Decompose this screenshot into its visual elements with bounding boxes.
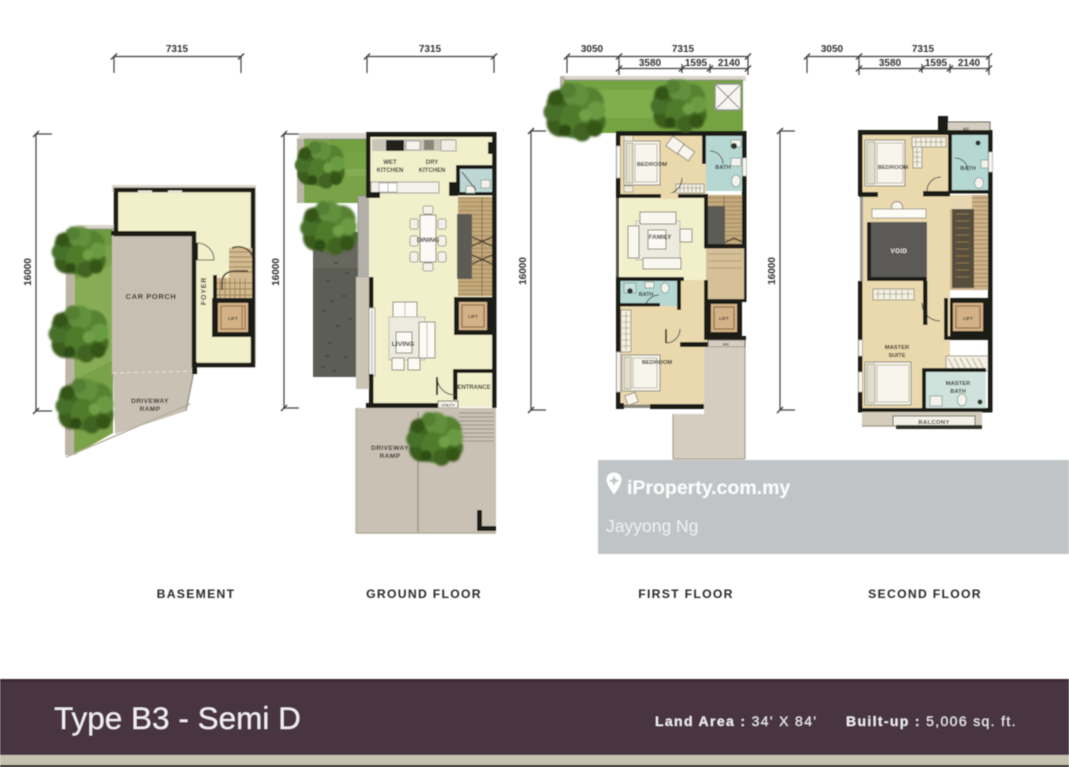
svg-text:KITCHEN: KITCHEN — [419, 168, 446, 174]
svg-text:BATH: BATH — [715, 165, 731, 171]
svg-text:KITCHEN: KITCHEN — [377, 168, 404, 174]
svg-text:DRIVEWAY: DRIVEWAY — [371, 445, 409, 452]
svg-text:DRIVEWAY: DRIVEWAY — [131, 398, 169, 405]
svg-text:7315: 7315 — [419, 44, 442, 55]
svg-text:LIFT: LIFT — [468, 314, 478, 319]
svg-text:SECOND FLOOR: SECOND FLOOR — [868, 587, 982, 601]
svg-text:BEDROOM: BEDROOM — [637, 162, 667, 168]
svg-text:CAR PORCH: CAR PORCH — [126, 292, 177, 301]
svg-text:LIFT: LIFT — [963, 316, 973, 321]
svg-text:16000: 16000 — [518, 257, 529, 285]
svg-text:BATH: BATH — [960, 166, 976, 172]
svg-text:Land Area : 34' X 84': Land Area : 34' X 84' — [655, 713, 817, 729]
svg-text:BATH: BATH — [950, 389, 966, 395]
svg-text:FAMILY: FAMILY — [649, 234, 673, 241]
svg-text:1595: 1595 — [685, 58, 708, 69]
svg-text:DRY: DRY — [426, 160, 438, 166]
svg-text:3580: 3580 — [879, 58, 902, 69]
svg-text:MASTER: MASTER — [946, 381, 971, 387]
svg-text:16000: 16000 — [23, 258, 34, 286]
svg-text:ENTRANCE: ENTRANCE — [457, 385, 490, 391]
svg-text:BEDROOM: BEDROOM — [642, 360, 672, 366]
svg-text:7315: 7315 — [672, 44, 695, 55]
svg-text:iProperty.com.my: iProperty.com.my — [627, 477, 790, 499]
svg-text:Built-up : 5,006 sq. ft.: Built-up : 5,006 sq. ft. — [846, 713, 1017, 729]
svg-text:LIFT: LIFT — [228, 316, 238, 321]
svg-text:VOID: VOID — [891, 249, 908, 255]
svg-text:BASEMENT: BASEMENT — [157, 587, 236, 601]
svg-text:16000: 16000 — [271, 258, 282, 286]
svg-text:Type B3 - Semi D: Type B3 - Semi D — [54, 700, 301, 736]
svg-text:RAMP: RAMP — [379, 453, 400, 460]
svg-text:7315: 7315 — [912, 44, 935, 55]
svg-text:BEDROOM: BEDROOM — [878, 165, 908, 171]
svg-text:7315: 7315 — [166, 44, 189, 55]
svg-text:A/C: A/C — [723, 343, 730, 347]
svg-text:UTILITY: UTILITY — [441, 404, 455, 408]
svg-text:DINING: DINING — [417, 237, 439, 244]
svg-text:GROUND FLOOR: GROUND FLOOR — [366, 587, 482, 601]
svg-text:3050: 3050 — [581, 44, 604, 55]
svg-text:FOYER: FOYER — [201, 277, 208, 305]
svg-text:3580: 3580 — [639, 58, 662, 69]
svg-text:FIRST FLOOR: FIRST FLOOR — [638, 587, 734, 601]
svg-text:SUITE: SUITE — [888, 353, 905, 359]
svg-text:2140: 2140 — [958, 58, 981, 69]
svg-text:LIVING: LIVING — [392, 341, 415, 348]
svg-text:3050: 3050 — [821, 44, 844, 55]
svg-text:MASTER: MASTER — [885, 345, 910, 351]
svg-text:LIFT: LIFT — [719, 316, 729, 321]
svg-text:RAMP: RAMP — [139, 406, 160, 413]
svg-text:16000: 16000 — [767, 257, 778, 285]
svg-text:1595: 1595 — [925, 58, 948, 69]
svg-text:WET: WET — [383, 160, 397, 166]
svg-text:BATH: BATH — [639, 292, 654, 298]
svg-text:Jayyong Ng: Jayyong Ng — [606, 516, 698, 536]
svg-text:2140: 2140 — [718, 58, 741, 69]
